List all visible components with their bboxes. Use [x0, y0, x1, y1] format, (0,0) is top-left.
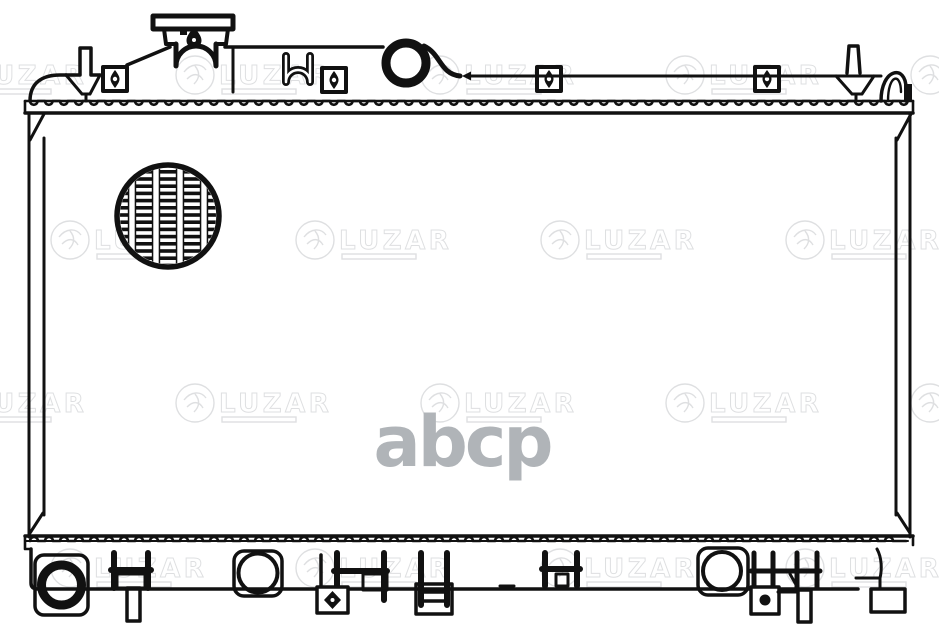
mount-bracket-bolt-3 [537, 67, 561, 91]
drain-hole [760, 595, 771, 606]
top-header-plate [25, 101, 913, 113]
tank-shoulder-slant [127, 47, 170, 65]
luzar-watermark-text: LUZAR [829, 554, 939, 584]
abcp-watermark: abcp [374, 401, 551, 483]
luzar-logo-watermark: LUZAR [786, 221, 939, 259]
radiator-line-art [25, 16, 913, 622]
right-dome [881, 73, 906, 101]
luzar-watermark-text: LUZAR [584, 554, 697, 584]
side-plate-right [896, 113, 911, 537]
right-pin [847, 46, 860, 73]
luzar-logo-watermark: LUZAR [296, 221, 452, 259]
luzar-logo-watermark: LUZAR [911, 384, 939, 422]
radiator-technical-drawing: LUZARLUZARLUZARLUZARLUZARLUZARLUZARLUZAR… [0, 0, 939, 639]
luzar-watermark-text: LUZAR [584, 226, 697, 256]
drawing-canvas: LUZARLUZARLUZARLUZARLUZARLUZARLUZARLUZAR… [0, 0, 939, 639]
luzar-logo-watermark: LUZAR [786, 549, 939, 587]
bottom-band [25, 536, 913, 549]
inlet-pipe-opening [386, 43, 460, 83]
mount-pin [127, 588, 140, 621]
watermark-layer: LUZARLUZARLUZARLUZARLUZARLUZARLUZARLUZAR… [0, 56, 939, 587]
core-fin-detail-circle [117, 165, 219, 267]
luzar-watermark-text: LUZAR [709, 389, 822, 419]
mount-bracket-bolt-1 [103, 67, 127, 91]
luzar-logo-watermark: LUZAR [911, 56, 939, 94]
mount-bracket-bolt-2 [322, 68, 346, 92]
filler-neck-with-cap [153, 16, 233, 66]
luzar-watermark-text: LUZAR [219, 389, 332, 419]
luzar-watermark-text: LUZAR [829, 226, 939, 256]
luzar-watermark-text: LUZAR [219, 61, 332, 91]
end-tab [904, 84, 912, 101]
right-funnel [833, 76, 877, 101]
mount-bracket-bolt-4 [755, 67, 779, 91]
mount-pin [798, 590, 811, 622]
luzar-watermark-text: LUZAR [339, 226, 452, 256]
luzar-logo-watermark: LUZAR [666, 384, 822, 422]
luzar-logo-watermark: LUZAR [541, 221, 697, 259]
right-foot-bracket [871, 589, 905, 612]
luzar-logo-watermark: LUZAR [176, 384, 332, 422]
side-plate-left [29, 113, 44, 537]
